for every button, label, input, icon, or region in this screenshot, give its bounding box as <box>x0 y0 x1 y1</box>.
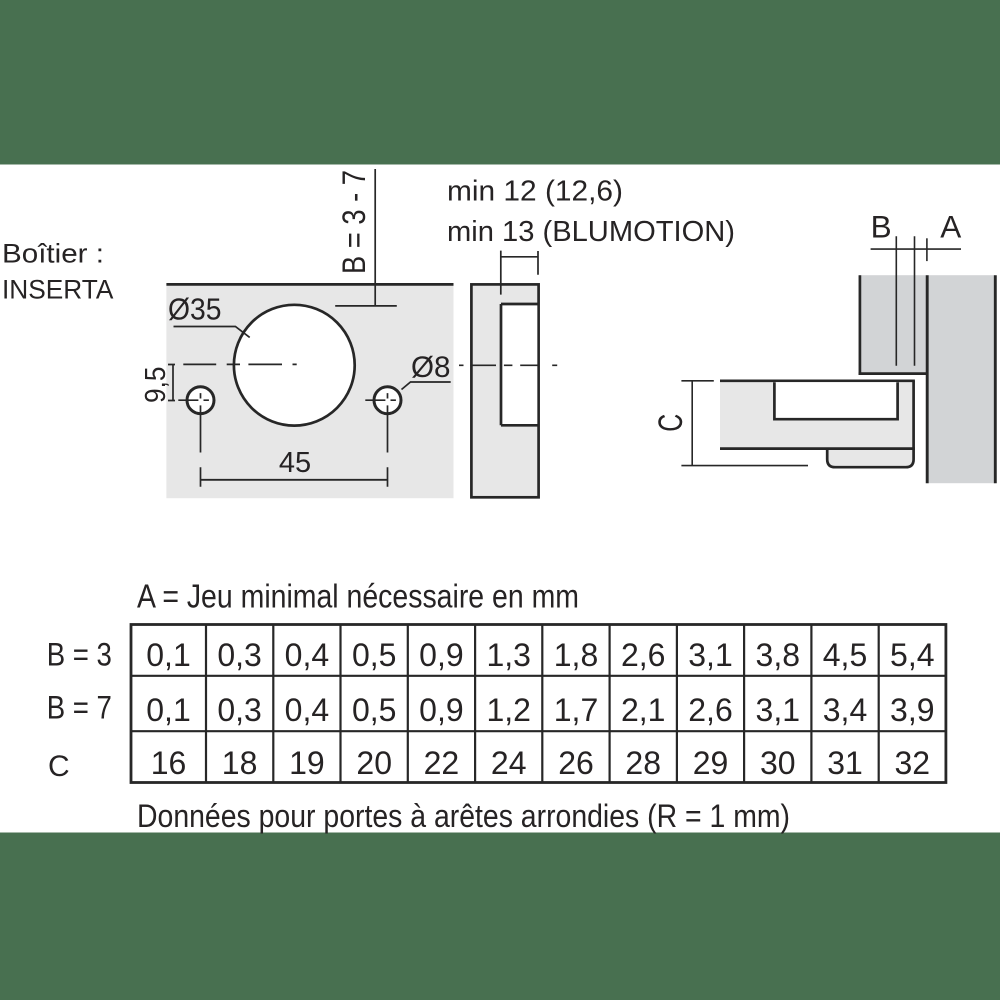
svg-text:0,9: 0,9 <box>419 637 463 673</box>
svg-text:9,5: 9,5 <box>140 367 172 404</box>
svg-text:0,4: 0,4 <box>285 692 329 728</box>
svg-text:1,3: 1,3 <box>486 637 530 673</box>
svg-text:Ø35: Ø35 <box>168 292 222 327</box>
svg-text:Ø8: Ø8 <box>411 351 451 384</box>
svg-text:0,4: 0,4 <box>285 637 329 673</box>
svg-text:2,6: 2,6 <box>688 692 732 728</box>
svg-text:5,4: 5,4 <box>890 637 934 673</box>
svg-text:19: 19 <box>289 745 325 781</box>
svg-text:20: 20 <box>356 745 392 781</box>
svg-text:3,8: 3,8 <box>756 637 800 673</box>
svg-text:3,1: 3,1 <box>688 637 732 673</box>
svg-text:3,9: 3,9 <box>890 692 934 728</box>
svg-text:min 12 (12,6): min 12 (12,6) <box>447 175 623 207</box>
svg-text:32: 32 <box>895 745 931 781</box>
svg-text:1,7: 1,7 <box>554 692 598 728</box>
svg-text:0,5: 0,5 <box>352 692 396 728</box>
svg-text:30: 30 <box>760 745 796 781</box>
svg-text:INSERTA: INSERTA <box>2 275 113 305</box>
svg-text:3,1: 3,1 <box>756 692 800 728</box>
svg-text:A: A <box>940 209 961 245</box>
svg-text:B = 3 - 7: B = 3 - 7 <box>336 170 372 274</box>
svg-text:45: 45 <box>279 447 311 479</box>
svg-text:0,3: 0,3 <box>217 692 261 728</box>
svg-text:28: 28 <box>625 745 661 781</box>
svg-text:26: 26 <box>558 745 594 781</box>
svg-text:22: 22 <box>424 745 460 781</box>
svg-text:0,5: 0,5 <box>352 637 396 673</box>
svg-text:B: B <box>871 209 892 245</box>
svg-text:1,8: 1,8 <box>554 637 598 673</box>
svg-text:min 13 (BLUMOTION): min 13 (BLUMOTION) <box>447 216 735 248</box>
svg-text:2,6: 2,6 <box>621 637 665 673</box>
svg-text:C: C <box>48 750 70 783</box>
svg-text:4,5: 4,5 <box>823 637 867 673</box>
svg-text:Données pour portes à arêtes a: Données pour portes à arêtes arrondies (… <box>137 798 790 834</box>
svg-text:B = 3: B = 3 <box>47 637 112 673</box>
svg-text:0,1: 0,1 <box>146 692 190 728</box>
svg-text:18: 18 <box>222 745 258 781</box>
svg-text:B = 7: B = 7 <box>47 690 112 726</box>
svg-text:29: 29 <box>693 745 729 781</box>
svg-text:A = Jeu minimal nécessaire en: A = Jeu minimal nécessaire en mm <box>137 578 579 615</box>
svg-text:0,1: 0,1 <box>146 637 190 673</box>
svg-text:31: 31 <box>827 745 863 781</box>
svg-text:0,9: 0,9 <box>419 692 463 728</box>
svg-text:24: 24 <box>491 745 527 781</box>
svg-text:2,1: 2,1 <box>621 692 665 728</box>
svg-text:1,2: 1,2 <box>486 692 530 728</box>
svg-text:Boîtier :: Boîtier : <box>2 239 104 269</box>
svg-text:0,3: 0,3 <box>217 637 261 673</box>
svg-text:3,4: 3,4 <box>823 692 867 728</box>
svg-text:C: C <box>652 414 690 432</box>
svg-text:16: 16 <box>151 745 187 781</box>
